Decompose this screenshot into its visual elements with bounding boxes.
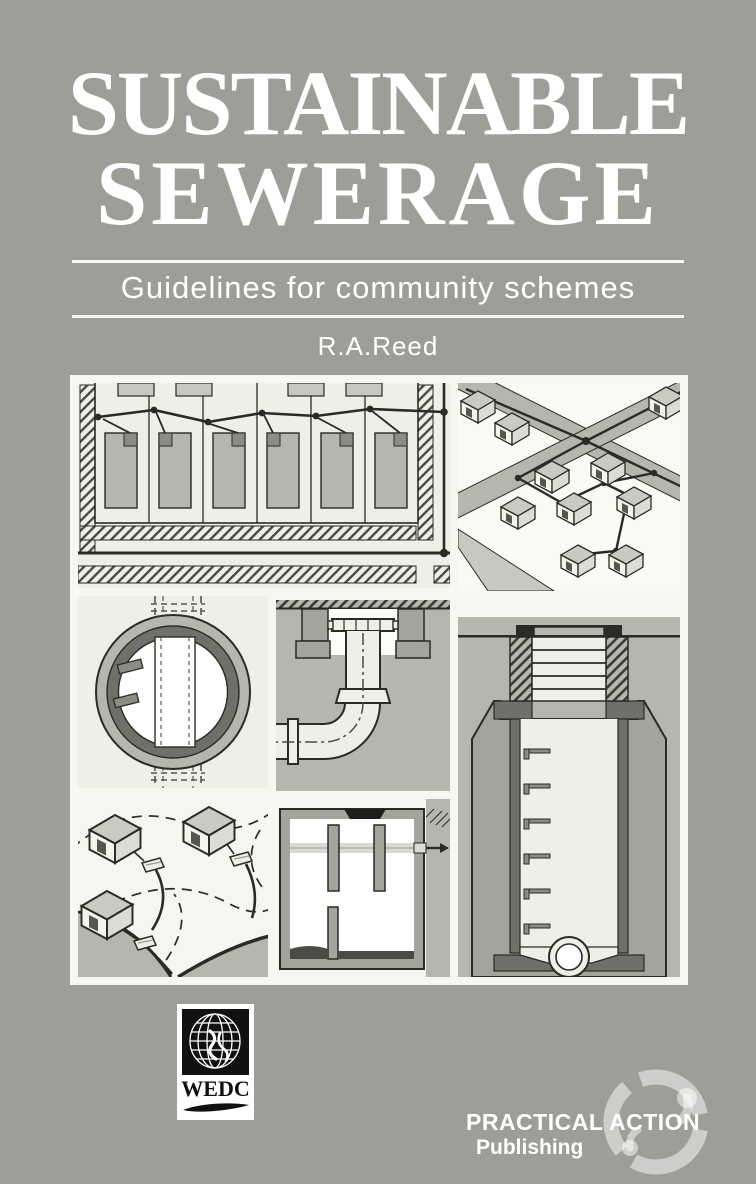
book-cover: SUSTAINABLE SEWERAGE Guidelines for comm… [0,0,756,1184]
book-title: SUSTAINABLE SEWERAGE [0,58,756,238]
book-subtitle: Guidelines for community schemes [0,266,756,310]
panel-isometric-neighbourhood [438,375,688,591]
publisher-division: Publishing [476,1136,700,1159]
author-name: R.A.Reed [0,330,756,362]
title-line-1: SUSTAINABLE [0,58,756,148]
montage-graphic [70,375,688,985]
title-line-2: SEWERAGE [0,148,756,238]
panel-access-bend-section [276,600,450,791]
wedc-wordmark: WEDC [177,1076,254,1102]
divider-rule-bottom [72,315,684,318]
panel-deep-manhole-section [458,617,680,977]
divider-rule-top [72,260,684,263]
panel-hillside-houses [72,796,272,977]
wedc-logo: WEDC [177,1004,254,1120]
practical-action-publisher: PRACTICAL ACTION Publishing [466,1110,700,1159]
wedc-swoosh-icon [181,1101,251,1115]
cover-illustration-montage [70,375,688,985]
panel-sewer-plan-view [78,379,450,588]
panel-septic-tank-section [276,799,450,977]
wedc-globe-icon [182,1009,249,1075]
panel-manhole-ring-plan [78,596,268,788]
publisher-name: PRACTICAL ACTION [466,1110,700,1135]
